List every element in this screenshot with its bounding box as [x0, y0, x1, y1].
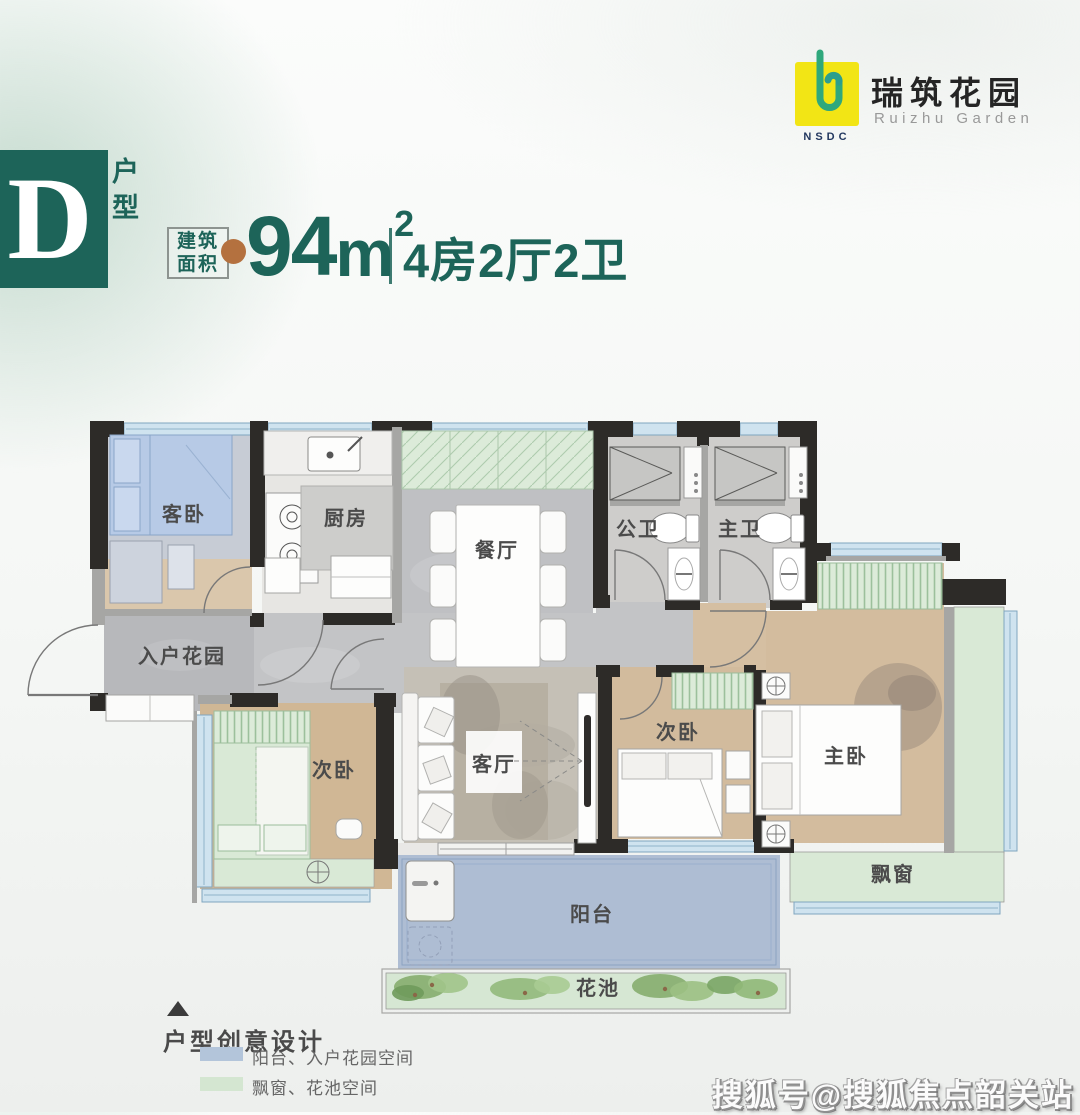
unit-type-label: 户型: [112, 154, 144, 226]
tv-icon: [584, 715, 591, 807]
shoe-cabinet-icon: [106, 695, 194, 721]
area-unit: m: [335, 220, 394, 286]
logo-mark-icon: [795, 62, 859, 126]
dining-table-icon: [430, 505, 566, 667]
legend-label-baywindow: 飘窗、花池空间: [252, 1074, 378, 1099]
label-master-bathroom: 主卫: [718, 517, 762, 541]
legend-swatch-baywindow: [200, 1077, 243, 1091]
floor-plan: 客卧 厨房 餐厅 公卫 主卫 入户花园 次卧 客厅 次卧 主卧 飘窗 阳台 花池: [0, 415, 1080, 1015]
area-value: 94: [246, 204, 335, 288]
unit-letter: D: [7, 160, 92, 278]
rooms-description: 4房2厅2卫: [403, 222, 628, 291]
label-guest-bedroom: 客卧: [161, 502, 206, 526]
unit-letter-badge: D: [0, 150, 108, 288]
label-living-room: 客厅: [471, 752, 516, 776]
label-entry-garden: 入户花园: [138, 644, 226, 668]
area-tag-box: 建筑 面积: [167, 227, 229, 279]
watermark: 搜狐号@搜狐焦点韶关站: [712, 1070, 1074, 1115]
area-tag-line1: 建筑: [169, 230, 227, 253]
label-kitchen: 厨房: [324, 506, 368, 530]
accent-dot: [221, 239, 246, 264]
label-dining-room: 餐厅: [475, 538, 519, 562]
legend-marker-icon: [167, 1001, 189, 1016]
brand-logo: [795, 62, 859, 126]
label-second-bedroom-left: 次卧: [312, 758, 356, 782]
label-second-bedroom-right: 次卧: [656, 720, 700, 744]
brand-name-cn: 瑞筑花园: [871, 68, 1027, 114]
header-divider: [389, 228, 392, 284]
zone-bay-window-right: [954, 607, 1004, 853]
label-public-bathroom: 公卫: [616, 518, 660, 541]
area-tag-line2: 面积: [169, 253, 227, 276]
dining-cabinet-icon: [402, 431, 593, 489]
label-flower-bed: 花池: [576, 977, 620, 1000]
brand-name-en: Ruizhu Garden: [874, 110, 1033, 127]
label-bay-window: 飘窗: [871, 862, 915, 886]
label-master-bedroom: 主卧: [824, 744, 868, 768]
legend-swatch-balcony: [200, 1047, 243, 1061]
brand-nsdc: NSDC: [793, 131, 861, 143]
legend-label-balcony: 阳台、入户花园空间: [252, 1044, 414, 1069]
label-balcony: 阳台: [570, 902, 614, 926]
zone-bay-window-left: [214, 859, 374, 887]
